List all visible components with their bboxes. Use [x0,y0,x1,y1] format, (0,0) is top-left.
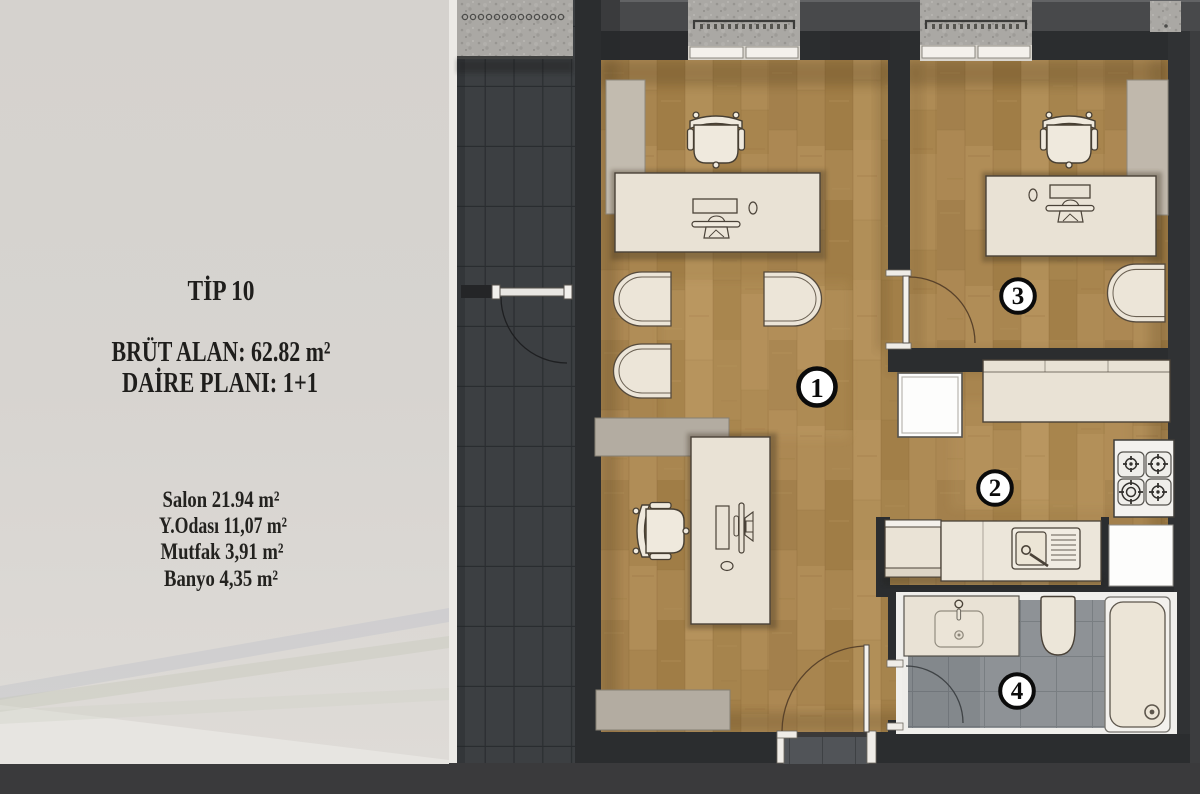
svg-text:1: 1 [810,373,824,403]
svg-text:TİP 10: TİP 10 [188,274,255,307]
svg-text:Banyo 4,35 m²: Banyo 4,35 m² [164,566,278,591]
svg-text:Mutfak 3,91 m²: Mutfak 3,91 m² [161,539,284,564]
svg-text:Salon 21.94 m²: Salon 21.94 m² [163,487,280,512]
svg-text:DAİRE PLANI: 1+1: DAİRE PLANI: 1+1 [122,366,318,399]
svg-text:BRÜT ALAN: 62.82 m²: BRÜT ALAN: 62.82 m² [112,336,331,368]
svg-text:4: 4 [1011,678,1024,705]
svg-text:3: 3 [1012,283,1025,310]
svg-text:Y.Odası 11,07 m²: Y.Odası 11,07 m² [159,513,287,538]
svg-text:2: 2 [989,475,1002,502]
